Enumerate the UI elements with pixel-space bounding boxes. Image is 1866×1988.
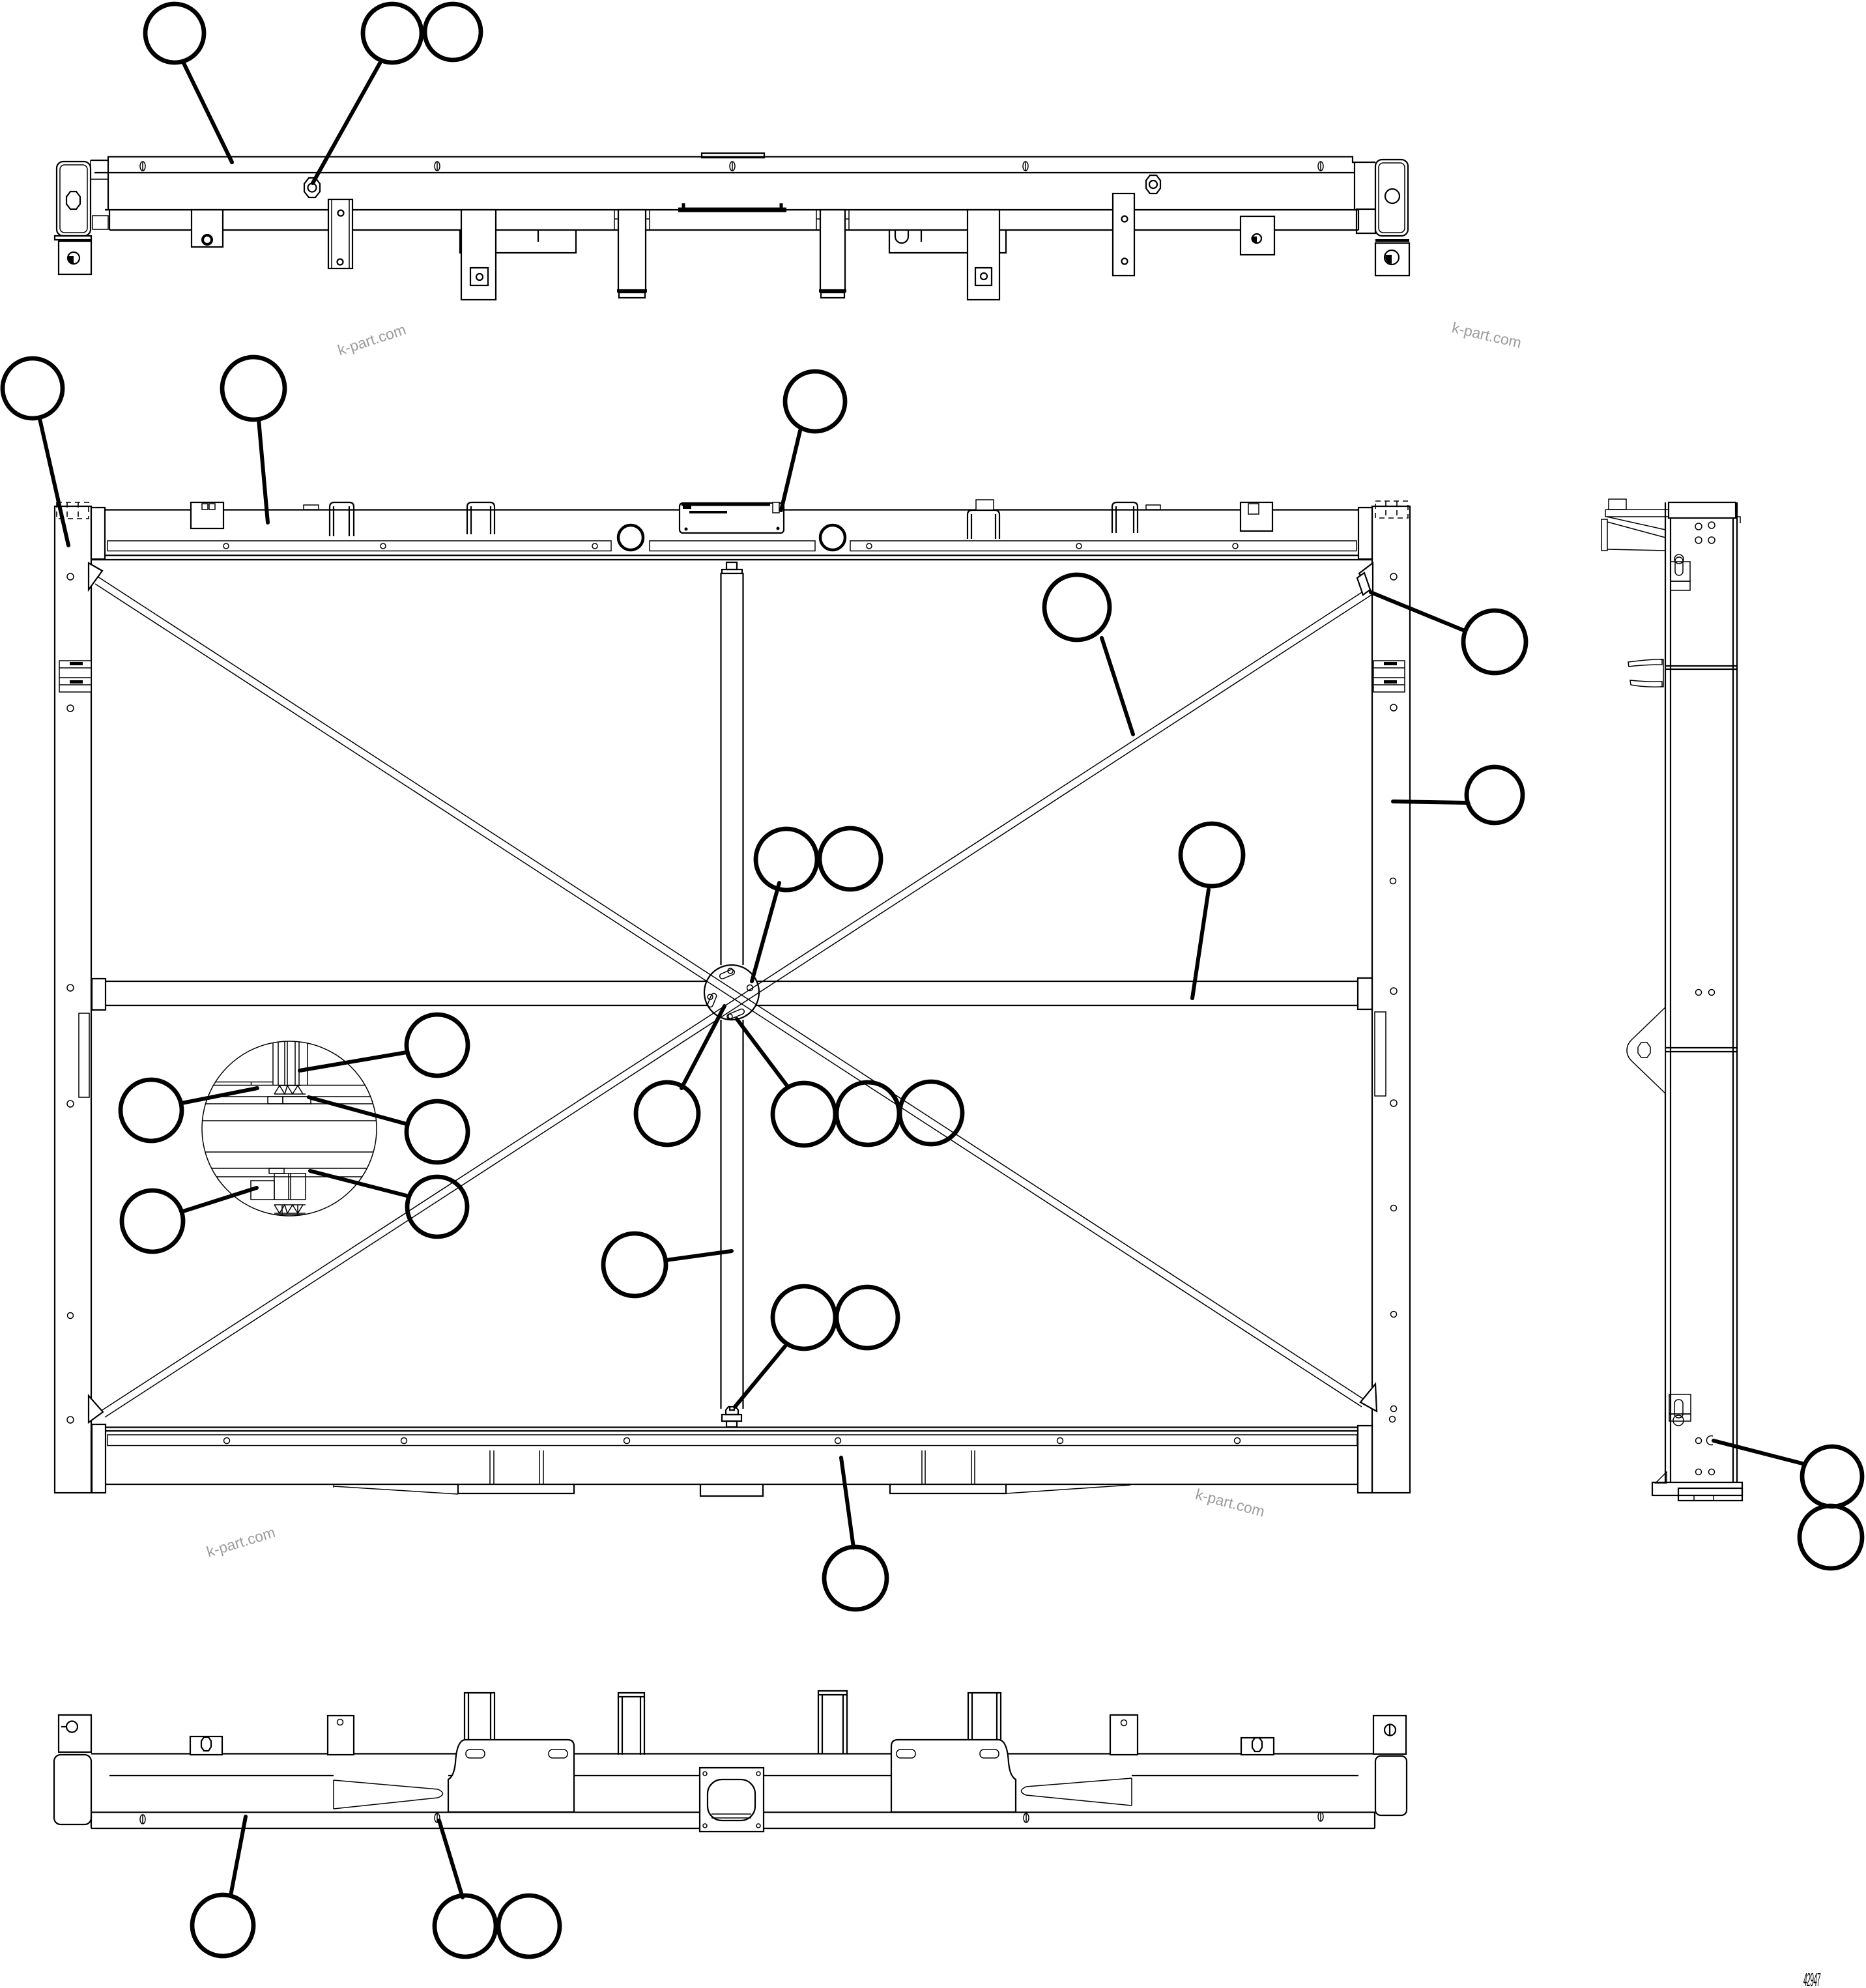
svg-text:42947: 42947 (1803, 1968, 1820, 1988)
